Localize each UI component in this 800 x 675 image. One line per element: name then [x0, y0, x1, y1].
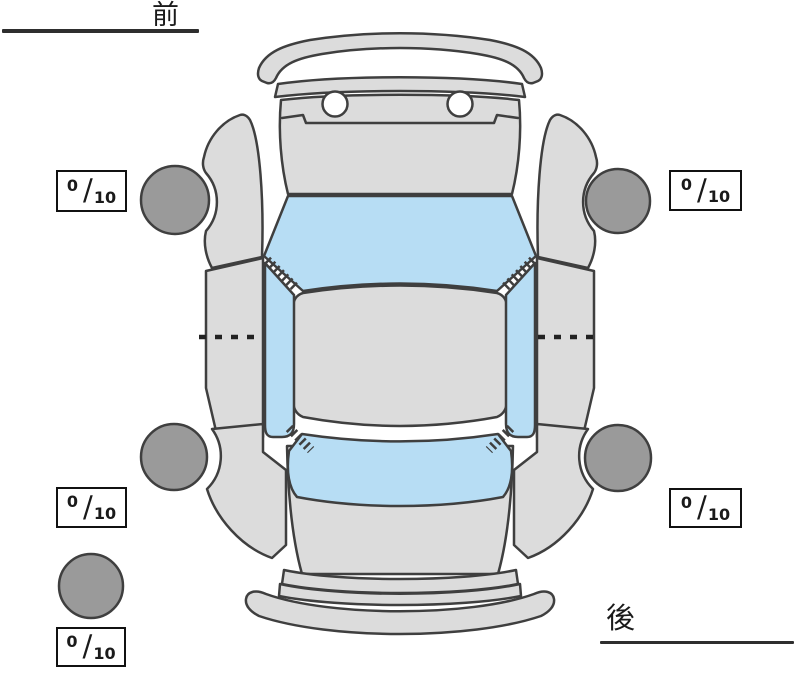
fraction-slash: /	[697, 173, 707, 207]
tread-value-rear-right: 0	[681, 493, 692, 512]
washer-nozzle-left	[323, 92, 348, 117]
fraction-slash: /	[83, 490, 93, 524]
windshield	[264, 196, 536, 291]
front-label: 前	[152, 2, 179, 29]
rear-quarter-left	[207, 424, 286, 558]
washer-nozzle-right	[448, 92, 473, 117]
rear-quarter-right	[514, 424, 593, 558]
tread-box-rear-left: 0/10	[56, 487, 127, 528]
front-bumper	[258, 33, 542, 83]
tire-spare	[59, 554, 123, 618]
tire-rear-left	[141, 424, 207, 490]
tread-value-spare: 0	[66, 632, 77, 651]
tread-value-front-left: 0	[67, 176, 78, 195]
tire-front-right	[586, 169, 650, 233]
tread-max-spare: 10	[93, 644, 115, 663]
fraction-slash: /	[83, 173, 93, 207]
tread-max-front-left: 10	[94, 188, 116, 207]
tread-box-rear-right: 0/10	[669, 488, 742, 528]
fraction-slash: /	[697, 490, 707, 524]
hood	[280, 95, 520, 194]
roof	[293, 286, 507, 427]
door-panel-right	[537, 258, 594, 437]
fraction-slash: /	[83, 629, 93, 663]
side-window-left	[265, 263, 294, 437]
tread-value-rear-left: 0	[67, 492, 78, 511]
front-underline	[2, 29, 199, 33]
tread-box-spare: 0/10	[56, 627, 126, 667]
tire-rear-right	[585, 425, 651, 491]
tread-box-front-right: 0/10	[669, 170, 742, 211]
front-fender-left	[203, 115, 263, 268]
tread-max-front-right: 10	[708, 187, 730, 206]
side-window-right	[506, 263, 535, 437]
door-panel-left	[206, 258, 263, 437]
tread-value-front-right: 0	[681, 175, 692, 194]
rear-window	[288, 434, 512, 506]
car-top-view	[0, 0, 800, 675]
tread-max-rear-right: 10	[708, 505, 730, 524]
rear-underline	[600, 641, 794, 644]
tire-front-left	[141, 166, 209, 234]
tread-box-front-left: 0/10	[56, 170, 127, 212]
rear-label: 後	[606, 604, 635, 633]
tread-max-rear-left: 10	[94, 504, 116, 523]
car-condition-diagram: 前 後 0/10 0/10 0/10 0/10 0/10	[0, 0, 800, 675]
